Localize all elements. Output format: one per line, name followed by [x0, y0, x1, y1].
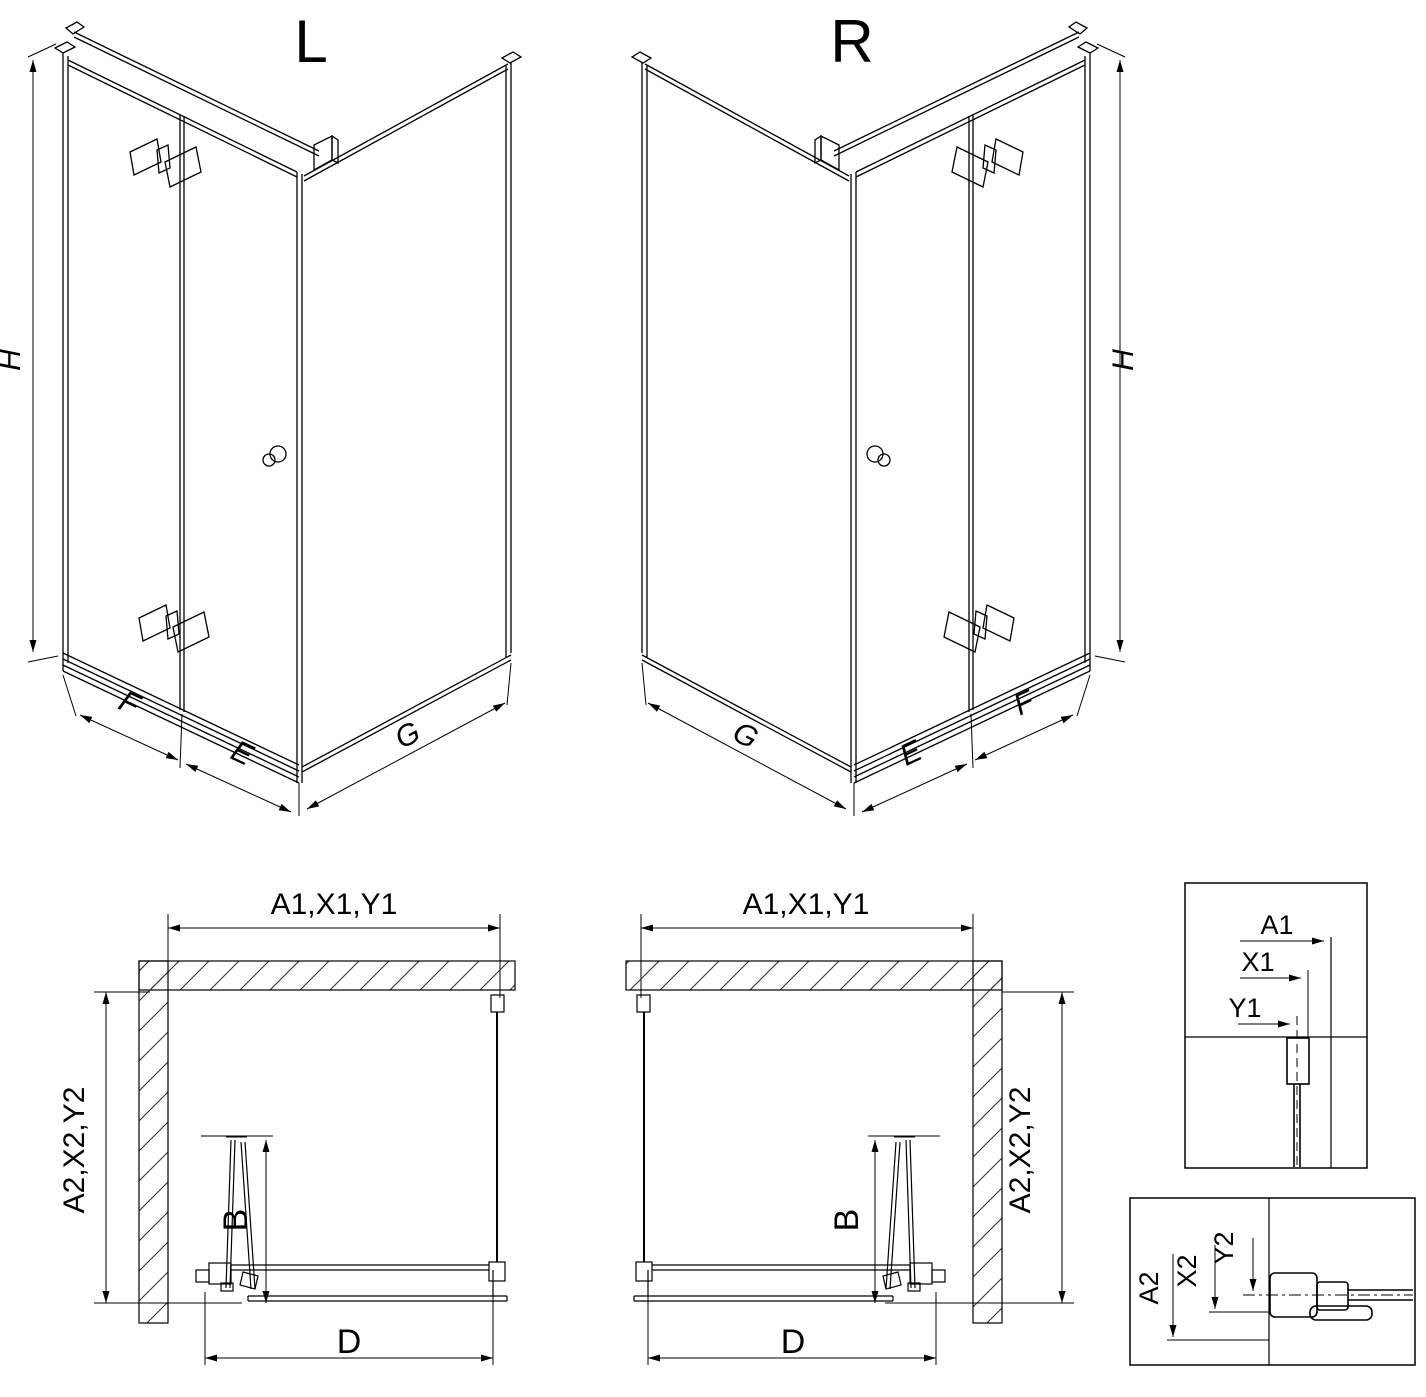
detail-label-y1: Y1 [1228, 993, 1261, 1023]
door-wall-panel [55, 42, 297, 671]
wall-top-left-plan [139, 961, 515, 990]
detail-label-y2: Y2 [1209, 1231, 1239, 1264]
drawing-sheet: L R H F E G H G E F A1,X1,Y1 A1,X1,Y1 A2… [0, 0, 1426, 1397]
top-hinge [130, 139, 201, 187]
bottom-hinge [139, 605, 209, 652]
dim-label-f-left: F [114, 685, 146, 723]
detail-label-x2: X2 [1172, 1254, 1202, 1287]
detail-label-a1: A1 [1260, 910, 1293, 940]
door-knob [263, 446, 286, 466]
plan-side-panel [489, 995, 505, 1281]
iso-enclosure-geometry [28, 22, 521, 816]
dim-label-h-right: H [1107, 349, 1140, 371]
plan-door-wall [196, 1263, 507, 1301]
plan-opening-label-left: D [337, 1323, 362, 1361]
side-wall-panel [302, 52, 521, 772]
wall-side-left-plan [139, 961, 168, 1323]
plan-width-label-left: A1,X1,Y1 [271, 888, 398, 921]
view-title-left: L [294, 8, 327, 75]
bottom-sill [63, 653, 299, 783]
dim-label-h-left: H [0, 349, 27, 371]
plan-fold-label-left: B [217, 1209, 255, 1232]
technical-drawing: L R H F E G H G E F A1,X1,Y1 A1,X1,Y1 A2… [0, 0, 1426, 1397]
wall-profile-section [1287, 1038, 1309, 1167]
masonry-walls [139, 961, 1002, 1323]
iso-enclosure-geometry-mirrored [632, 22, 1125, 816]
top-support-bar [66, 22, 319, 156]
corner-post [297, 172, 302, 816]
plan-fold-label-right: B [828, 1209, 866, 1232]
plan-depth-label-left: A2,X2,Y2 [58, 1087, 91, 1214]
height-dimension [28, 44, 58, 662]
detail-label-a2: A2 [1134, 1271, 1164, 1304]
dim-label-e-right: E [895, 734, 928, 773]
plan-depth-label-right: A2,X2,Y2 [1004, 1087, 1037, 1214]
plan-width-label-right: A1,X1,Y1 [743, 888, 870, 921]
plan-opening-label-right: D [781, 1323, 806, 1361]
wall-profile-side-section [1270, 1273, 1413, 1320]
detail-label-x1: X1 [1241, 947, 1274, 977]
dim-label-f-right: F [1009, 684, 1041, 722]
dim-label-e-left: E [226, 734, 259, 773]
wall-side-right-plan [973, 961, 1002, 1323]
view-title-right: R [830, 8, 873, 75]
wall-top-right-plan [626, 961, 1002, 990]
